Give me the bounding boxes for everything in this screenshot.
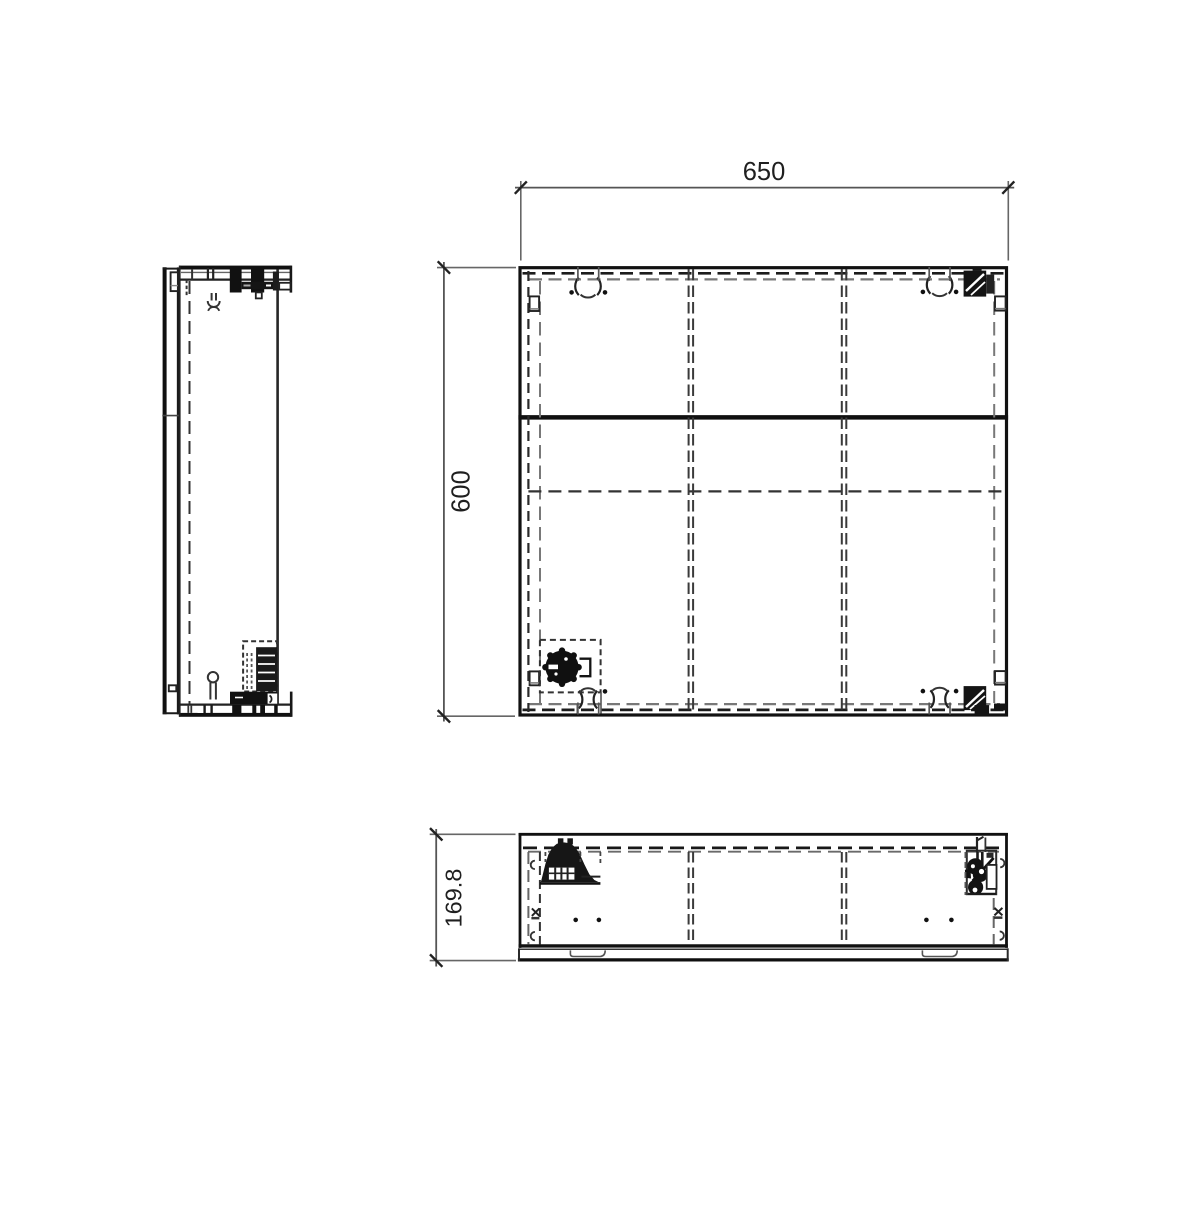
svg-text:600: 600 — [448, 470, 476, 513]
svg-text:169.8: 169.8 — [441, 869, 467, 928]
svg-text:650: 650 — [743, 158, 786, 186]
